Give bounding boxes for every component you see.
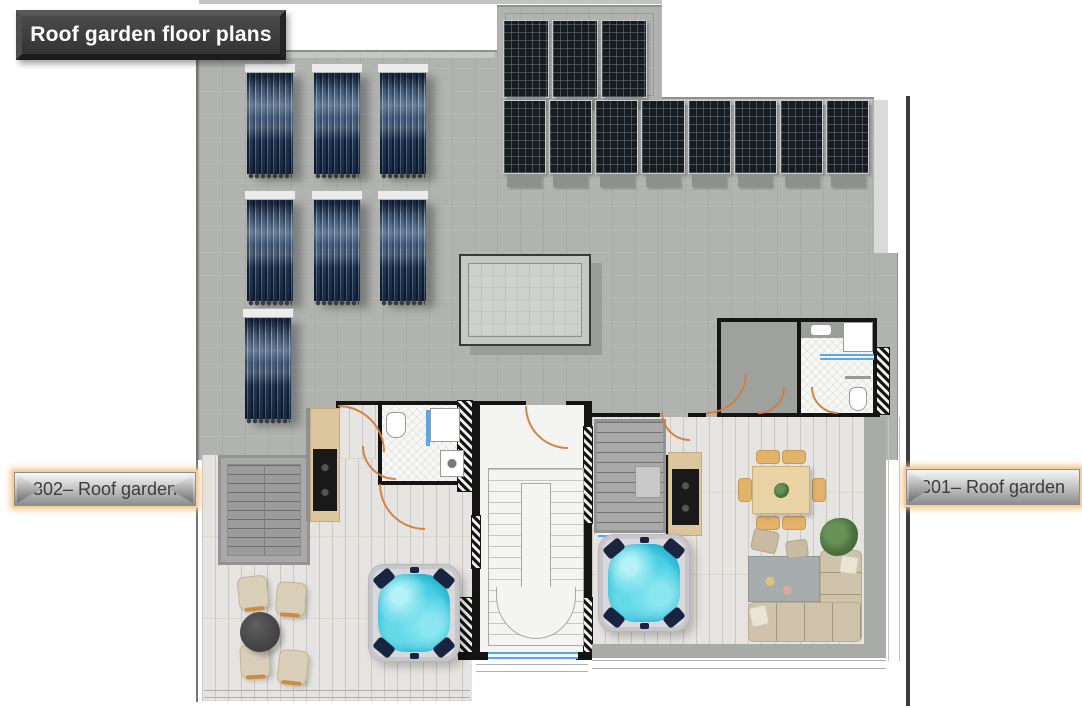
dining-chair	[756, 450, 780, 464]
pv-panel	[549, 100, 592, 174]
stairwell-wall-top-right	[566, 401, 592, 405]
stairs-center-turn	[496, 587, 576, 639]
coffee-table	[748, 556, 820, 602]
hot-tub-302-water	[378, 574, 450, 652]
stairwell-wall-bottom-right	[576, 652, 592, 660]
kitchen-301-appliances	[672, 469, 699, 525]
solar-thermal-collector	[314, 70, 360, 174]
thermal-row-2	[247, 197, 426, 301]
unit-301-label-text: 301– Roof garden	[921, 477, 1065, 498]
terrace-round-table	[240, 612, 280, 652]
pv-mount-bar	[646, 175, 680, 187]
hot-tub-302	[368, 564, 460, 662]
skylight	[459, 254, 591, 346]
wall-bath302-left	[378, 401, 382, 485]
hatched-wall-c	[877, 348, 889, 414]
hot-tub-jet	[410, 653, 419, 659]
thermal-row-1	[247, 70, 426, 174]
stairs-302-midline	[264, 465, 265, 555]
pv-mount-bar	[785, 175, 819, 187]
hatched-wall-b	[458, 598, 472, 654]
solar-thermal-collector	[247, 70, 293, 174]
pv-panel	[503, 20, 549, 98]
wall-301-top-seg2	[688, 413, 706, 417]
terrace-chair	[275, 581, 307, 617]
unit-302-label-text: 302– Roof garden	[33, 479, 177, 500]
pv-mount-bar	[738, 175, 772, 187]
pv-mount-bar	[831, 175, 865, 187]
stairwell-window	[488, 652, 578, 659]
hot-tub-301-water	[608, 544, 680, 622]
stairs-301-landing	[635, 466, 661, 498]
pv-panel	[552, 20, 598, 98]
pv-mount-bar	[553, 175, 587, 187]
shower-302	[430, 408, 460, 442]
stairs-301	[594, 419, 666, 533]
pv-panel	[734, 100, 777, 174]
hot-tub-jet	[640, 537, 649, 543]
pv-mount-bar	[600, 175, 634, 187]
wall-301-top-seg1	[592, 413, 660, 417]
terrace-301-right-band	[864, 417, 886, 657]
wall-302-top	[336, 401, 476, 405]
stairwell-wall-top-left	[472, 401, 526, 405]
solar-thermal-collector	[247, 197, 293, 301]
wall-301-top-seg3	[744, 413, 758, 417]
dining-chair	[782, 450, 806, 464]
pv-panel	[826, 100, 869, 174]
shower-301	[843, 322, 873, 352]
dining-chair	[738, 478, 752, 502]
terrace-chair	[236, 575, 269, 612]
stairwell-bottom-frame	[476, 664, 588, 672]
dining-chair	[812, 478, 826, 502]
stairwell-wall-left-hatch	[472, 516, 480, 568]
kitchen-302-counter	[310, 408, 340, 522]
pv-mount-bar	[692, 175, 726, 187]
wall-bath302-bottom	[378, 481, 468, 485]
pv-row-long-mounts	[507, 175, 865, 187]
wall-301-top-seg4	[782, 413, 814, 417]
solar-thermal-collector	[245, 315, 291, 419]
terrace-301-bottom-frame	[592, 660, 886, 669]
title-banner: Roof garden floor plans	[16, 10, 286, 60]
bathroom-302-glass	[426, 410, 430, 446]
roof-edge-shadow	[874, 100, 888, 253]
stairwell-wall-right-hatch1	[584, 427, 592, 523]
bath-301-shelf	[845, 376, 871, 379]
pv-panel	[595, 100, 638, 174]
pv-row-long	[503, 100, 869, 174]
stairwell-wall-bottom-left	[472, 652, 488, 660]
unit-302-label: 302– Roof garden	[12, 470, 198, 508]
stairs-302	[218, 455, 310, 565]
hot-tub-jet	[640, 623, 649, 629]
bathroom-301-window	[820, 354, 874, 360]
sofa-pillow	[748, 604, 770, 627]
pv-panel	[780, 100, 823, 174]
stairwell-wall-right-hatch2	[584, 598, 592, 654]
pv-panel	[601, 20, 647, 98]
solar-thermal-collector	[380, 70, 426, 174]
toilet-302	[386, 412, 406, 438]
terrace-301-bottom-band	[592, 644, 886, 658]
terrace-302-bottom-frame	[204, 690, 470, 698]
plan-left-boundary-line	[196, 50, 198, 702]
pv-mount-bar	[507, 175, 541, 187]
pv-panel	[503, 100, 546, 174]
site-boundary-line	[906, 96, 910, 706]
unit-301-label: 301– Roof garden	[904, 467, 1082, 507]
roof-top-parapet	[199, 0, 662, 4]
stairs-center	[488, 468, 584, 646]
toilet-301	[849, 387, 867, 411]
pv-row-top	[503, 20, 647, 98]
hatched-wall-a	[458, 401, 472, 491]
pv-panel	[688, 100, 731, 174]
wall-cap-b	[458, 652, 472, 660]
solar-thermal-collector	[314, 197, 360, 301]
sink-301	[810, 324, 832, 336]
thermal-single	[245, 315, 295, 419]
stairs-302-treads	[227, 464, 301, 556]
solar-thermal-collector	[380, 197, 426, 301]
skylight-glazing	[468, 263, 582, 337]
kitchen-302-appliances	[313, 449, 337, 511]
pv-panel	[641, 100, 684, 174]
terrace-301-right-frame	[888, 417, 900, 661]
sofa-pillow	[839, 555, 859, 575]
terrace-chair	[276, 649, 309, 686]
hot-tub-301	[598, 534, 690, 632]
floor-plan-page: Roof garden floor plans 302– Roof garden…	[0, 0, 1082, 708]
hot-tub-jet	[410, 567, 419, 573]
washer-302	[440, 450, 464, 477]
kitchen-301-counter	[668, 452, 702, 536]
dining-chair	[782, 516, 806, 530]
ottoman	[785, 539, 809, 560]
